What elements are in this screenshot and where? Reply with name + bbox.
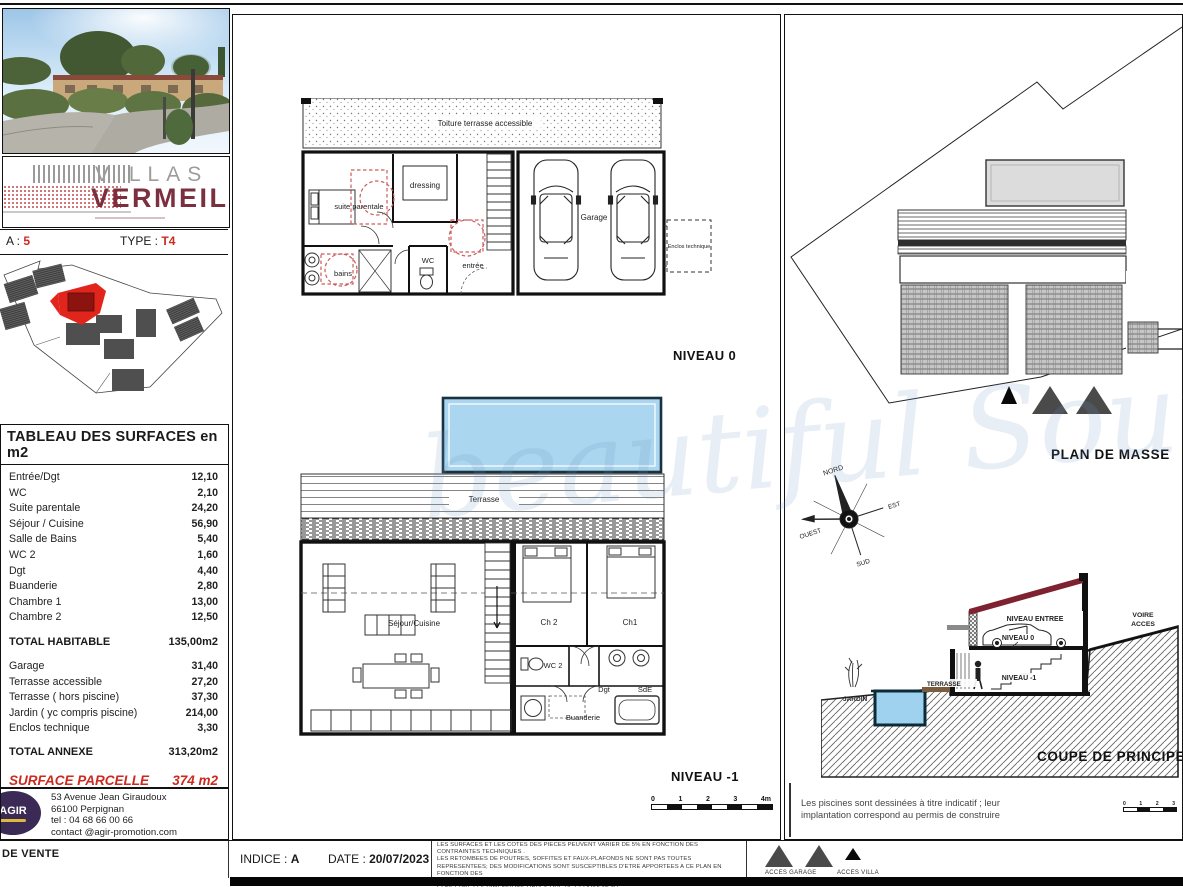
villa-number: 5	[23, 234, 30, 248]
acces-villa-icon	[845, 848, 861, 860]
garage-label: Garage	[581, 213, 608, 222]
jardin-plant	[845, 658, 862, 687]
dressing-label: dressing	[410, 181, 440, 190]
coupe-pool	[871, 691, 929, 725]
acces-villa-triangle	[1001, 386, 1017, 404]
disclaimer-line: CONTRAINTES TECHNIQUES .	[437, 849, 739, 856]
villa-label: A : 5	[6, 234, 30, 248]
type-label: TYPE : T4	[120, 234, 175, 248]
piscine	[443, 398, 661, 472]
plan-sheet: VILLAS VERMEIL A : 5 TYPE : T4	[0, 0, 1183, 887]
brand-logo-box: VILLAS VERMEIL	[2, 156, 230, 228]
sejour-label: Séjour/Cuisine	[388, 619, 441, 628]
disclaimer-line: LES SURFACES ET LES COTES DES PIECES PEU…	[437, 842, 739, 849]
surfaces-rows: Entrée/Dgt12,10 WC2,10 Suite parentale24…	[1, 465, 228, 790]
coupe-niveau-1-label: NIVEAU -1	[1002, 675, 1037, 682]
table-row: Garage31,40	[1, 659, 228, 675]
scale-bar: 0 1 2 3 4m	[651, 796, 773, 810]
thumb-houses	[0, 264, 204, 391]
piscine-note: Les piscines sont dessinées à titre indi…	[801, 797, 1051, 821]
disclaimer-line: LES RETOMBEES DE POUTRES, SOFFITES ET FA…	[437, 856, 739, 878]
compass-west: OUEST	[799, 527, 822, 541]
masse-upper-floor	[900, 256, 1126, 283]
entree-label: entrée	[462, 261, 483, 270]
acces-villa-label: ACCES VILLA	[837, 870, 879, 876]
date-value: 20/07/2023	[369, 852, 429, 866]
brand-line2: VERMEIL	[91, 183, 229, 214]
scale-2: 2	[706, 796, 710, 803]
scale-4m: 4m	[761, 796, 771, 803]
roof-section	[969, 577, 1083, 615]
titleblock-divider	[228, 841, 229, 878]
site-photo	[2, 8, 230, 154]
scale-0: 0	[651, 796, 655, 803]
contact-lines: 53 Avenue Jean Giraudoux 66100 Perpignan…	[51, 792, 177, 838]
floorplans-panel: Toiture terrasse accessible dressing sui…	[232, 14, 781, 840]
plan-de-masse	[785, 19, 1182, 461]
note-divider	[789, 783, 791, 837]
acces-garage-icon	[805, 845, 833, 867]
masse-coupe-panel: PLAN DE MASSE NORD EST SUD OUEST	[784, 14, 1183, 840]
site-plan-thumbnail	[0, 253, 228, 421]
contact-city: 66100 Perpignan	[51, 804, 177, 816]
niveau-entree-label: NIVEAU ENTREE	[1007, 616, 1064, 623]
table-row: Chambre 212,50	[1, 610, 228, 626]
masse-enclos	[1128, 322, 1158, 353]
bains-label: bains	[334, 269, 352, 278]
voirie-label-2: ACCES	[1131, 621, 1155, 628]
table-row: Buanderie2,80	[1, 579, 228, 595]
table-row: WC2,10	[1, 486, 228, 502]
scale-3: 3	[733, 796, 737, 803]
piscine-note-line2: implantation correspond au permis de con…	[801, 809, 1051, 821]
table-row: WC 21,60	[1, 548, 228, 564]
sheet-bottom-bar	[230, 877, 1183, 886]
wc-label: WC	[422, 256, 435, 265]
masse-roof-left	[901, 285, 1008, 374]
ch1-label: Ch1	[623, 618, 638, 627]
terrasse-label: Terrasse	[469, 495, 500, 504]
indice-value: A	[291, 852, 300, 866]
mini-scale-bar: 0123	[1123, 801, 1177, 812]
surfaces-title: TABLEAU DES SURFACES en m2	[1, 425, 228, 465]
compass-east: EST	[887, 501, 901, 512]
site-photo-art	[3, 9, 229, 153]
table-row: Jardin ( yc compris piscine)214,00	[1, 706, 228, 722]
terrasse-deck-lower	[301, 518, 664, 540]
sde-label: SdE	[638, 685, 652, 694]
masse-dark-band	[898, 240, 1126, 246]
coupe-de-principe: JARDIN NIVEAU -1	[821, 567, 1181, 779]
niveau-1-plan: Terrasse	[299, 396, 667, 743]
titleblock-divider	[431, 841, 432, 878]
table-row: Dgt4,40	[1, 564, 228, 580]
compass-north: NORD	[823, 464, 845, 477]
total-annexe-row: TOTAL ANNEXE313,20m2	[1, 744, 228, 760]
wc2-label: WC 2	[544, 661, 563, 670]
suite-label: suite parentale	[334, 202, 383, 211]
masse-pool	[986, 160, 1124, 206]
ch2-label: Ch 2	[541, 618, 558, 627]
dgt-label: Dgt	[598, 685, 611, 694]
table-row: Suite parentale24,20	[1, 501, 228, 517]
table-row: Enclos technique3,30	[1, 721, 228, 737]
site-plan-art	[0, 253, 228, 421]
stairs-niveau0	[487, 154, 511, 250]
masse-roof-right	[1026, 285, 1122, 374]
villa-type-row: A : 5 TYPE : T4	[0, 229, 228, 255]
indice-field: INDICE : A	[240, 852, 299, 866]
agir-logo: AGIR	[0, 791, 41, 835]
coupe-niveau0-label: NIVEAU 0	[1002, 635, 1034, 642]
total-habitable-row: TOTAL HABITABLE135,00m2	[1, 634, 228, 650]
date-field: DATE : 20/07/2023	[328, 852, 429, 866]
central-wall	[510, 542, 516, 734]
table-row: Salle de Bains5,40	[1, 532, 228, 548]
scale-1: 1	[678, 796, 682, 803]
table-row: Séjour / Cuisine56,90	[1, 517, 228, 533]
stairs-niveau-1	[485, 543, 510, 683]
contact-box: AGIR 53 Avenue Jean Giraudoux 66100 Perp…	[0, 788, 229, 840]
surfaces-table: TABLEAU DES SURFACES en m2 Entrée/Dgt12,…	[0, 424, 229, 788]
niveau0-title: NIVEAU 0	[673, 348, 736, 363]
masse-terrasse	[898, 210, 1126, 240]
table-row: Chambre 113,00	[1, 595, 228, 611]
table-row: Terrasse ( hors piscine)37,30	[1, 690, 228, 706]
contact-email: contact @agir-promotion.com	[51, 827, 177, 839]
acces-garage-triangle	[1076, 386, 1112, 414]
sheet-top-rule	[0, 3, 1183, 5]
table-row: Terrasse accessible27,20	[1, 675, 228, 691]
niveau0-plan: Toiture terrasse accessible dressing sui…	[301, 98, 713, 310]
contact-address: 53 Avenue Jean Giraudoux	[51, 792, 177, 804]
enclos-label: Enclos technique	[668, 244, 711, 250]
acces-garage-triangle	[1032, 386, 1068, 414]
jardin-label: JARDIN	[843, 696, 868, 703]
type-value: T4	[161, 234, 175, 248]
brand-tagline-rule	[95, 217, 165, 219]
acces-garage-label: ACCES GARAGE	[765, 870, 817, 876]
niveau-1-title: NIVEAU -1	[671, 769, 739, 784]
piscine-note-line1: Les piscines sont dessinées à titre indi…	[801, 797, 1051, 809]
toiture-label: Toiture terrasse accessible	[438, 119, 533, 128]
coupe-title: COUPE DE PRINCIPE	[1037, 749, 1183, 764]
contact-phone: tel : 04 68 66 00 66	[51, 815, 177, 827]
title-block: INDICE : A DATE : 20/07/2023 LES SURFACE…	[0, 840, 1183, 878]
acces-garage-icon	[765, 845, 793, 867]
plan-de-masse-title: PLAN DE MASSE	[1051, 447, 1170, 462]
niveau-1-outline	[301, 542, 664, 734]
compass-rose: NORD EST SUD OUEST	[791, 461, 907, 577]
table-row: Entrée/Dgt12,10	[1, 470, 228, 486]
coupe-terrasse-label: TERRASSE	[927, 681, 961, 688]
buanderie-label: Buanderie	[566, 713, 600, 722]
canopy	[947, 625, 969, 630]
voirie-label-1: VOIRE	[1132, 612, 1154, 619]
titleblock-divider	[746, 841, 747, 878]
